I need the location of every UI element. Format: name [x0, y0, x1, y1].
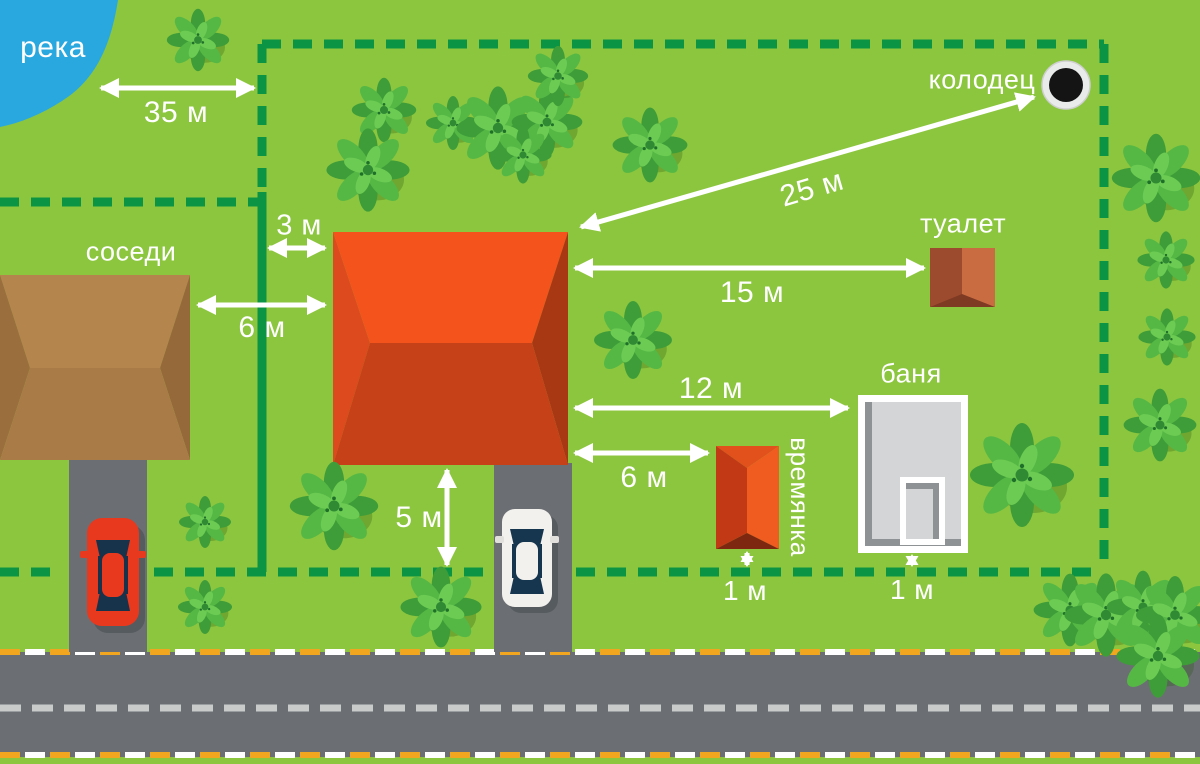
- bush-icon: [594, 301, 672, 379]
- bush-icon: [528, 46, 588, 106]
- road: [0, 652, 1200, 757]
- bush-icon: [326, 128, 409, 211]
- bush-icon: [494, 126, 551, 183]
- bushes: [167, 9, 1200, 698]
- bathhouse-building: [858, 395, 968, 553]
- bathhouse-porch: [900, 477, 945, 545]
- red-car: [80, 518, 146, 633]
- bush-icon: [1112, 134, 1200, 222]
- distance-15m: 15 м: [720, 278, 784, 308]
- bush-icon: [970, 423, 1074, 527]
- well-label: колодец: [929, 67, 1036, 94]
- distance-1m-bath: 1 м: [890, 576, 934, 604]
- neighbor-house: [0, 275, 190, 460]
- shed-building: [716, 446, 779, 549]
- bush-icon: [1138, 308, 1195, 365]
- toilet-label: туалет: [920, 211, 1006, 238]
- bush-icon: [400, 566, 481, 647]
- toilet-building: [930, 248, 995, 307]
- bush-icon: [613, 108, 688, 183]
- bush-icon: [290, 462, 378, 550]
- bush-icon: [352, 78, 416, 142]
- bush-icon: [1137, 231, 1194, 288]
- distance-6m-left: 6 м: [238, 313, 285, 343]
- river-label: река: [20, 33, 86, 63]
- shed-label: времянка: [787, 437, 813, 556]
- bush-icon: [179, 496, 231, 548]
- bush-icon: [167, 9, 229, 71]
- bush-icon: [178, 580, 232, 634]
- bathhouse-label: баня: [880, 361, 941, 388]
- distance-6m-center: 6 м: [620, 463, 667, 493]
- distance-3m: 3 м: [276, 212, 322, 241]
- white-car: [495, 509, 559, 613]
- neighbors-label: соседи: [86, 239, 177, 266]
- bush-icon: [1116, 614, 1199, 697]
- well-icon: [1042, 61, 1090, 109]
- main-house: [333, 232, 568, 465]
- bush-icon: [1124, 389, 1197, 462]
- site-plan-diagram: река 35 м колодец 25 м туалет 15 м сосед…: [0, 0, 1200, 764]
- distance-5m: 5 м: [395, 503, 442, 533]
- distance-35m: 35 м: [144, 98, 208, 128]
- distance-1m-shed: 1 м: [723, 577, 767, 605]
- distance-12m: 12 м: [679, 374, 743, 404]
